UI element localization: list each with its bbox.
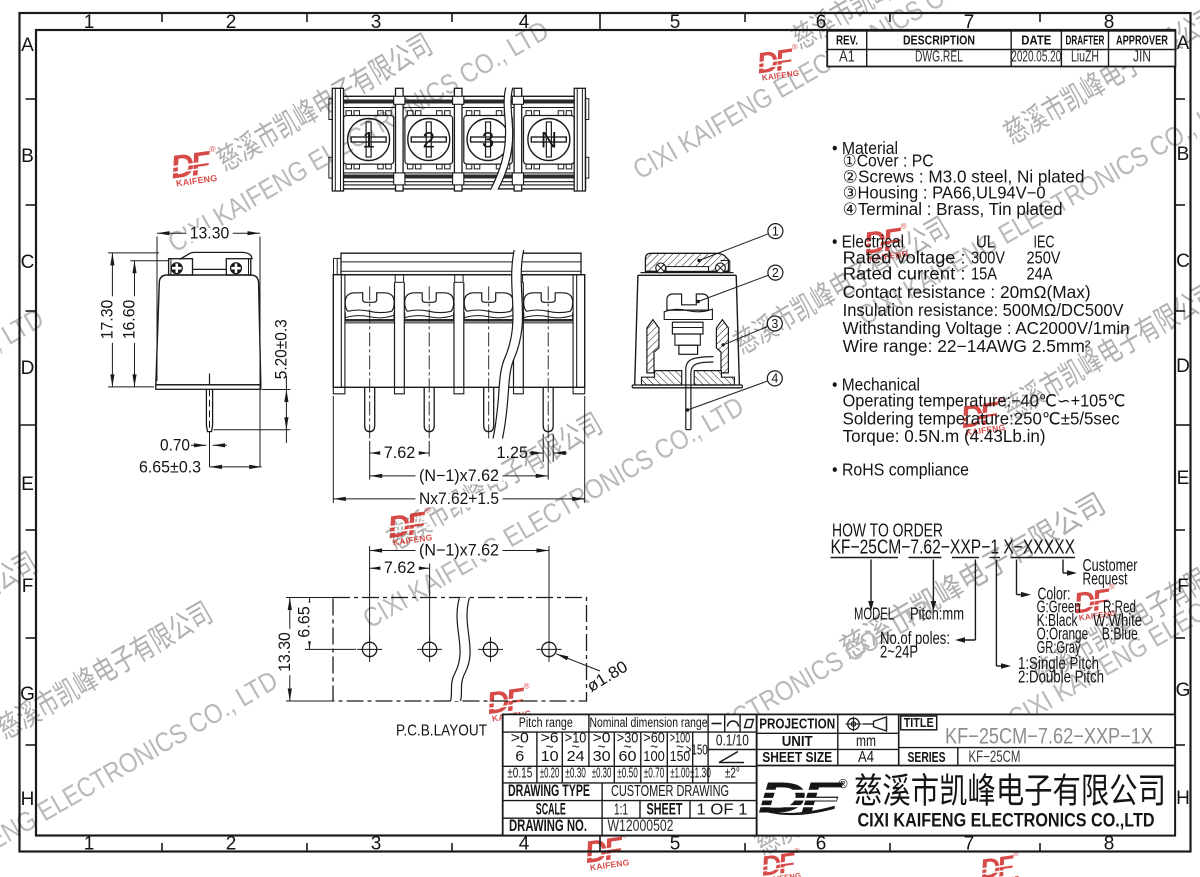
svg-text:Insulation resistance: 500MΩ/D: Insulation resistance: 500MΩ/DC500V xyxy=(843,300,1125,320)
svg-text:2020.05.20: 2020.05.20 xyxy=(1011,49,1061,66)
svg-text:1: 1 xyxy=(772,224,779,238)
svg-text:0.1/10: 0.1/10 xyxy=(716,733,749,750)
svg-text:DRAWING NO.: DRAWING NO. xyxy=(509,817,587,835)
svg-text:TITLE: TITLE xyxy=(904,715,934,730)
svg-text:6: 6 xyxy=(816,12,827,33)
svg-text:G: G xyxy=(1176,680,1191,701)
svg-text:16.60: 16.60 xyxy=(121,300,139,340)
svg-text:±2°: ±2° xyxy=(725,765,740,782)
svg-text:3: 3 xyxy=(771,317,778,331)
svg-text:DRAWING TYPE: DRAWING TYPE xyxy=(508,782,590,800)
svg-text:A4: A4 xyxy=(858,749,874,766)
svg-text:DF: DF xyxy=(978,849,1017,877)
svg-text:Contact resistance : 20mΩ(Max): Contact resistance : 20mΩ(Max) xyxy=(843,282,1091,302)
svg-text:KF−25CM−7.62−XXP−1X: KF−25CM−7.62−XXP−1X xyxy=(945,724,1153,749)
svg-text:N: N xyxy=(541,128,557,153)
svg-text:KF−25CM: KF−25CM xyxy=(969,748,1021,766)
svg-text:6: 6 xyxy=(515,748,524,765)
svg-text:Nx7.62+1.5: Nx7.62+1.5 xyxy=(419,490,499,508)
svg-text:1.25: 1.25 xyxy=(497,444,529,462)
svg-text:P.C.B.LAYOUT: P.C.B.LAYOUT xyxy=(396,723,487,740)
svg-text:ø1.80: ø1.80 xyxy=(584,658,631,696)
svg-text:CIXI KAIFENG ELECTRONICS CO.,L: CIXI KAIFENG ELECTRONICS CO.,LTD xyxy=(858,810,1155,832)
svg-text:4: 4 xyxy=(519,834,530,855)
svg-text:±0.15: ±0.15 xyxy=(507,766,532,782)
svg-text:8: 8 xyxy=(1104,12,1115,33)
svg-text:1 OF 1: 1 OF 1 xyxy=(697,802,748,819)
svg-text:1: 1 xyxy=(362,128,375,153)
svg-text:A1: A1 xyxy=(839,49,855,66)
svg-text:Nominal dimension range: Nominal dimension range xyxy=(590,715,708,730)
svg-text:±0.30: ±0.30 xyxy=(592,766,611,782)
svg-text:®: ® xyxy=(1013,849,1020,859)
svg-text:F: F xyxy=(1177,576,1189,597)
svg-text:1:1: 1:1 xyxy=(614,802,628,819)
svg-text:±0.20: ±0.20 xyxy=(540,766,559,782)
svg-text:100: 100 xyxy=(643,748,665,765)
svg-text:1: 1 xyxy=(84,834,95,855)
svg-text:±1.30: ±1.30 xyxy=(690,766,711,782)
svg-text:10: 10 xyxy=(541,748,559,765)
svg-text:2: 2 xyxy=(772,266,779,280)
svg-text:30: 30 xyxy=(593,748,611,765)
svg-text:LiuZH: LiuZH xyxy=(1071,49,1099,66)
svg-text:E: E xyxy=(1177,468,1190,489)
svg-text:5: 5 xyxy=(670,12,681,33)
svg-text:UNIT: UNIT xyxy=(782,734,813,750)
svg-text:15A: 15A xyxy=(971,264,997,284)
svg-text:7.62: 7.62 xyxy=(384,444,416,462)
svg-text:®: ® xyxy=(523,681,530,691)
svg-text:KF−25CM−7.62−XXP−1 X−XXXXX: KF−25CM−7.62−XXP−1 X−XXXXX xyxy=(831,537,1076,559)
svg-text:mm: mm xyxy=(856,733,876,750)
svg-text:• RoHS compliance: • RoHS compliance xyxy=(832,460,969,480)
svg-text:±0.30: ±0.30 xyxy=(565,766,586,782)
svg-text:±0.50: ±0.50 xyxy=(617,766,638,782)
svg-text:±0.70: ±0.70 xyxy=(644,766,665,782)
svg-text:(N−1)x7.62: (N−1)x7.62 xyxy=(419,542,499,560)
svg-text:DRAFTER: DRAFTER xyxy=(1065,32,1104,47)
svg-text:®: ® xyxy=(900,221,907,231)
svg-text:D: D xyxy=(21,358,35,379)
svg-text:®: ® xyxy=(838,777,848,791)
svg-text:A: A xyxy=(21,35,34,56)
svg-text:H: H xyxy=(21,789,35,810)
svg-text:慈溪市凯峰电子有限公司: 慈溪市凯峰电子有限公司 xyxy=(854,772,1166,811)
svg-text:D: D xyxy=(1176,356,1190,377)
svg-text:SHEET SIZE: SHEET SIZE xyxy=(762,750,832,766)
svg-text:1: 1 xyxy=(84,12,95,33)
svg-text:G: G xyxy=(20,684,35,705)
svg-text:W12000502: W12000502 xyxy=(608,817,674,835)
svg-text:B: B xyxy=(1177,144,1190,165)
svg-text:60: 60 xyxy=(619,748,637,765)
svg-text:Request: Request xyxy=(1083,569,1128,589)
svg-text:3: 3 xyxy=(371,834,382,855)
svg-text:Torque: 0.5N.m (4.43Lb.in): Torque: 0.5N.m (4.43Lb.in) xyxy=(843,426,1046,446)
svg-text:REV.: REV. xyxy=(836,32,858,47)
svg-text:7.62: 7.62 xyxy=(384,559,416,577)
svg-text:Withstanding Voltage : AC2000V: Withstanding Voltage : AC2000V/1min xyxy=(843,318,1130,338)
svg-text:A: A xyxy=(1177,33,1190,54)
svg-text:2: 2 xyxy=(226,12,237,33)
svg-text:7: 7 xyxy=(964,834,975,855)
svg-text:0.70: 0.70 xyxy=(160,437,190,455)
svg-text:5: 5 xyxy=(670,834,681,855)
svg-text:PROJECTION: PROJECTION xyxy=(759,717,835,733)
svg-text:E: E xyxy=(21,474,34,495)
svg-text:2: 2 xyxy=(422,128,435,153)
svg-text:24: 24 xyxy=(567,748,585,765)
svg-text:Wire range: 22−14AWG 2.5mm²: Wire range: 22−14AWG 2.5mm² xyxy=(843,336,1091,356)
svg-text:3: 3 xyxy=(482,128,495,153)
svg-text:DWG.REL: DWG.REL xyxy=(915,49,963,66)
svg-text:DESCRIPTION: DESCRIPTION xyxy=(903,32,975,47)
svg-text:6.65: 6.65 xyxy=(296,606,314,638)
svg-text:④Terminal : Brass, Tin plated: ④Terminal : Brass, Tin plated xyxy=(843,199,1063,219)
svg-text:13.30: 13.30 xyxy=(276,632,294,672)
svg-text:C: C xyxy=(21,252,35,273)
svg-text:(N−1)x7.62: (N−1)x7.62 xyxy=(419,467,499,485)
svg-text:3: 3 xyxy=(371,12,382,33)
svg-text:2~24P: 2~24P xyxy=(880,642,918,662)
svg-text:SCALE: SCALE xyxy=(536,801,566,819)
svg-text:6.65±0.3: 6.65±0.3 xyxy=(139,458,201,476)
svg-text:Operating temperature:−40℃∽+10: Operating temperature:−40℃∽+105℃ xyxy=(843,391,1126,411)
svg-text:CIXI KAIFENG ELECTRONICS CO.,: CIXI KAIFENG ELECTRONICS CO., LTD xyxy=(163,14,554,258)
svg-text:2: 2 xyxy=(226,834,237,855)
svg-text:6: 6 xyxy=(816,834,827,855)
svg-text:±1.00: ±1.00 xyxy=(670,766,689,782)
svg-text:17.30: 17.30 xyxy=(98,300,116,340)
svg-text:5.20±0.3: 5.20±0.3 xyxy=(272,319,290,379)
svg-text:>150: >150 xyxy=(686,742,708,759)
svg-text:24A: 24A xyxy=(1027,264,1053,284)
svg-text:MODEL: MODEL xyxy=(854,604,894,624)
svg-text:4: 4 xyxy=(771,372,778,386)
svg-text:Rated current :: Rated current : xyxy=(843,264,966,284)
svg-text:B:Blue: B:Blue xyxy=(1102,624,1138,644)
svg-text:APPROVER: APPROVER xyxy=(1116,32,1168,47)
svg-text:SHEET: SHEET xyxy=(647,801,683,819)
svg-text:4: 4 xyxy=(519,12,530,33)
svg-text:7: 7 xyxy=(964,12,975,33)
svg-text:B: B xyxy=(21,146,34,167)
svg-text:C: C xyxy=(1176,251,1190,272)
svg-text:JIN: JIN xyxy=(1133,49,1151,66)
svg-text:H: H xyxy=(1176,788,1190,809)
svg-text:2:Double Pitch: 2:Double Pitch xyxy=(1018,667,1104,687)
svg-text:DATE: DATE xyxy=(1021,32,1051,47)
svg-text:Pitch:mm: Pitch:mm xyxy=(910,604,964,624)
svg-text:F: F xyxy=(22,576,34,597)
svg-text:8: 8 xyxy=(1104,834,1115,855)
svg-text:GR:Gray: GR:Gray xyxy=(1037,637,1081,657)
svg-text:13.30: 13.30 xyxy=(190,224,230,242)
svg-text:SERIES: SERIES xyxy=(908,750,946,766)
svg-text:CUSTOMER DRAWING: CUSTOMER DRAWING xyxy=(611,783,729,800)
svg-text:Pitch range: Pitch range xyxy=(519,715,573,730)
